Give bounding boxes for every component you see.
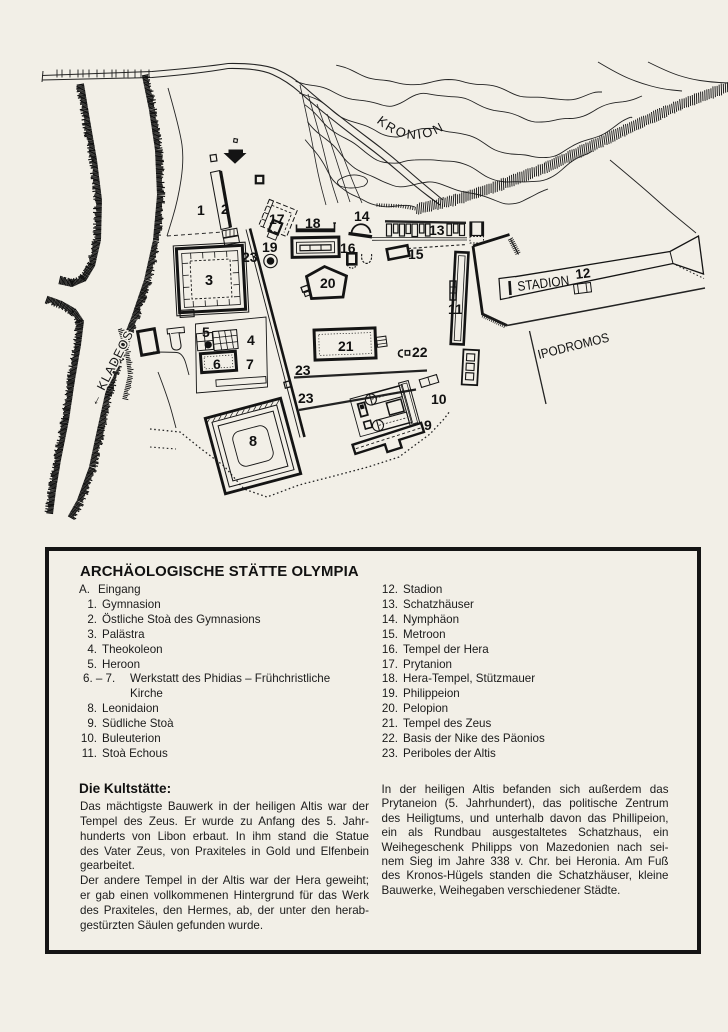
svg-text:KRONION: KRONION — [374, 113, 447, 142]
svg-text:10: 10 — [431, 391, 447, 407]
svg-text:17: 17 — [269, 211, 285, 227]
svg-text:13: 13 — [429, 222, 445, 238]
svg-text:21: 21 — [338, 338, 354, 354]
svg-text:23: 23 — [295, 362, 311, 378]
svg-text:22: 22 — [412, 344, 428, 360]
svg-text:14: 14 — [354, 208, 370, 224]
svg-text:5: 5 — [202, 324, 210, 340]
svg-text:12: 12 — [575, 265, 592, 282]
svg-text:STADION: STADION — [517, 273, 570, 294]
svg-text:1: 1 — [197, 202, 205, 218]
svg-text:3: 3 — [205, 273, 213, 289]
svg-text:2: 2 — [221, 201, 229, 217]
svg-text:6: 6 — [213, 356, 221, 372]
svg-text:IPODROMOS: IPODROMOS — [536, 330, 611, 362]
svg-text:7: 7 — [246, 356, 254, 372]
svg-text:23: 23 — [242, 249, 258, 265]
svg-text:9: 9 — [424, 417, 432, 433]
svg-text:23: 23 — [298, 390, 314, 406]
svg-text:18: 18 — [305, 215, 321, 231]
svg-text:19: 19 — [262, 239, 278, 255]
svg-text:8: 8 — [249, 434, 257, 450]
svg-text:11: 11 — [448, 301, 463, 317]
svg-text:20: 20 — [320, 275, 336, 291]
svg-text:4: 4 — [247, 332, 255, 348]
svg-text:15: 15 — [408, 246, 424, 262]
